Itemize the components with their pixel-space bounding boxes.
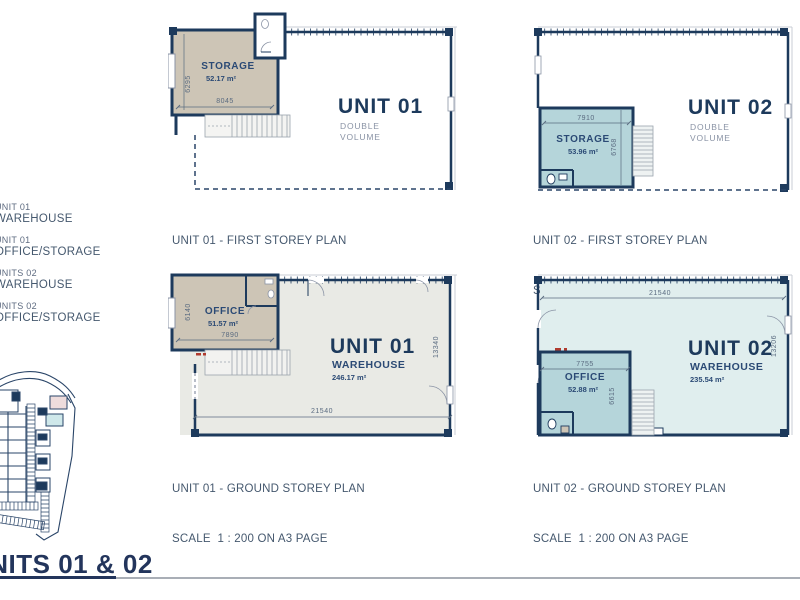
site-buildings [0,390,67,492]
site-locality-plan [0,362,80,544]
dim-width-label: 8045 [216,98,234,105]
office-label: OFFICE [565,372,605,383]
office-area-label: 51.57 m² [208,319,239,328]
wc-room [255,14,285,58]
legend-item-unit02-office-storage: UNITS 02 OFFICE/STORAGE [0,301,101,325]
title-underline-gray [116,577,800,579]
red-markers [196,353,206,356]
wall-corner-block [169,27,177,35]
stairs [632,390,654,435]
caption-line1: UNIT 01 - GROUND STOREY PLAN [172,481,365,498]
storage-label: STORAGE [201,61,254,72]
legend-space-label: OFFICE/STORAGE [0,246,101,259]
caption-line1: UNIT 02 - FIRST STOREY PLAN [533,233,708,250]
dim-height-label: 6295 [185,75,192,93]
caption-line1: UNIT 02 - GROUND STOREY PLAN [533,481,726,498]
legend-space-label: WAREHOUSE [0,279,101,292]
warehouse-area-label: 235.54 m² [690,375,725,384]
dim-office-height: 6140 [185,303,192,321]
warehouse-area-label: 246.17 m² [332,373,367,382]
plan-unit01-first-storey: 8045 6295 STORAGE 52.17 m² UNIT 01 DOUBL… [168,12,460,198]
dim-office-width: 7890 [221,332,239,339]
unit-title: UNIT 02 [688,337,773,360]
double-volume-label-2: VOLUME [340,132,381,142]
double-volume-label-1: DOUBLE [690,122,730,132]
stairs [205,350,290,375]
storage-area-label: 52.17 m² [206,74,237,83]
stairs [633,126,653,176]
dim-warehouse-width: 21540 [649,290,671,297]
plan-unit02-first-storey: 7910 6768 STORAGE 53.96 m² UNIT 02 DOUBL… [528,14,794,198]
caption-line2: SCALE 1 : 200 ON A3 PAGE [533,531,726,548]
legend-space-label: OFFICE/STORAGE [0,312,101,325]
dim-width-label: 7910 [577,115,595,122]
caption-line1: UNIT 01 - FIRST STOREY PLAN [172,233,347,250]
legend-space-label: WAREHOUSE [0,213,101,226]
dim-warehouse-height: 13340 [433,336,440,358]
legend-unit-label: UNIT 01 [0,202,101,213]
left-alcove [168,54,175,88]
legend-item-unit02-warehouse: UNITS 02 WAREHOUSE [0,268,101,292]
caption-unit02-ground: UNIT 02 - GROUND STOREY PLAN SCALE 1 : 2… [533,448,726,564]
warehouse-label: WAREHOUSE [690,361,763,373]
dim-office-width: 7755 [576,361,594,368]
unit-title: UNIT 01 [338,95,423,118]
title-underline-navy [0,576,116,579]
warehouse-label: WAREHOUSE [332,359,405,371]
double-volume-label-1: DOUBLE [340,121,380,131]
double-volume-label-2: VOLUME [690,133,731,143]
stairs [205,115,290,137]
dim-office-height: 6615 [609,387,616,405]
caption-line2: SCALE 1 : 200 ON A3 PAGE [172,531,365,548]
plan-unit01-ground-storey: 6140 7890 21540 13340 OFFICE 51.57 m² UN… [168,266,460,448]
legend-unit-label: UNITS 02 [0,301,101,312]
red-markers [555,348,567,351]
legend-unit-label: UNITS 02 [0,268,101,279]
dim-height-label: 6768 [611,138,618,156]
plan-unit02-ground-storey: 21540 13206 7755 6615 OFFICE 52.88 m² UN… [528,266,794,448]
storage-area-label: 53.96 m² [568,147,599,156]
legend-unit-label: UNIT 01 [0,235,101,246]
unit-title: UNIT 01 [330,335,415,358]
office-label: OFFICE [205,306,245,317]
dim-warehouse-width: 21540 [311,408,333,415]
left-alcove [168,298,175,328]
office-area-label: 52.88 m² [568,385,599,394]
unit-title: UNIT 02 [688,96,773,119]
legend-item-unit01-office-storage: UNIT 01 OFFICE/STORAGE [0,235,101,259]
caption-unit01-ground: UNIT 01 - GROUND STOREY PLAN SCALE 1 : 2… [172,448,365,564]
legend-item-unit01-warehouse: UNIT 01 WAREHOUSE [0,202,101,226]
storage-label: STORAGE [556,134,609,145]
legend: UNIT 01 WAREHOUSE UNIT 01 OFFICE/STORAGE… [0,202,101,325]
